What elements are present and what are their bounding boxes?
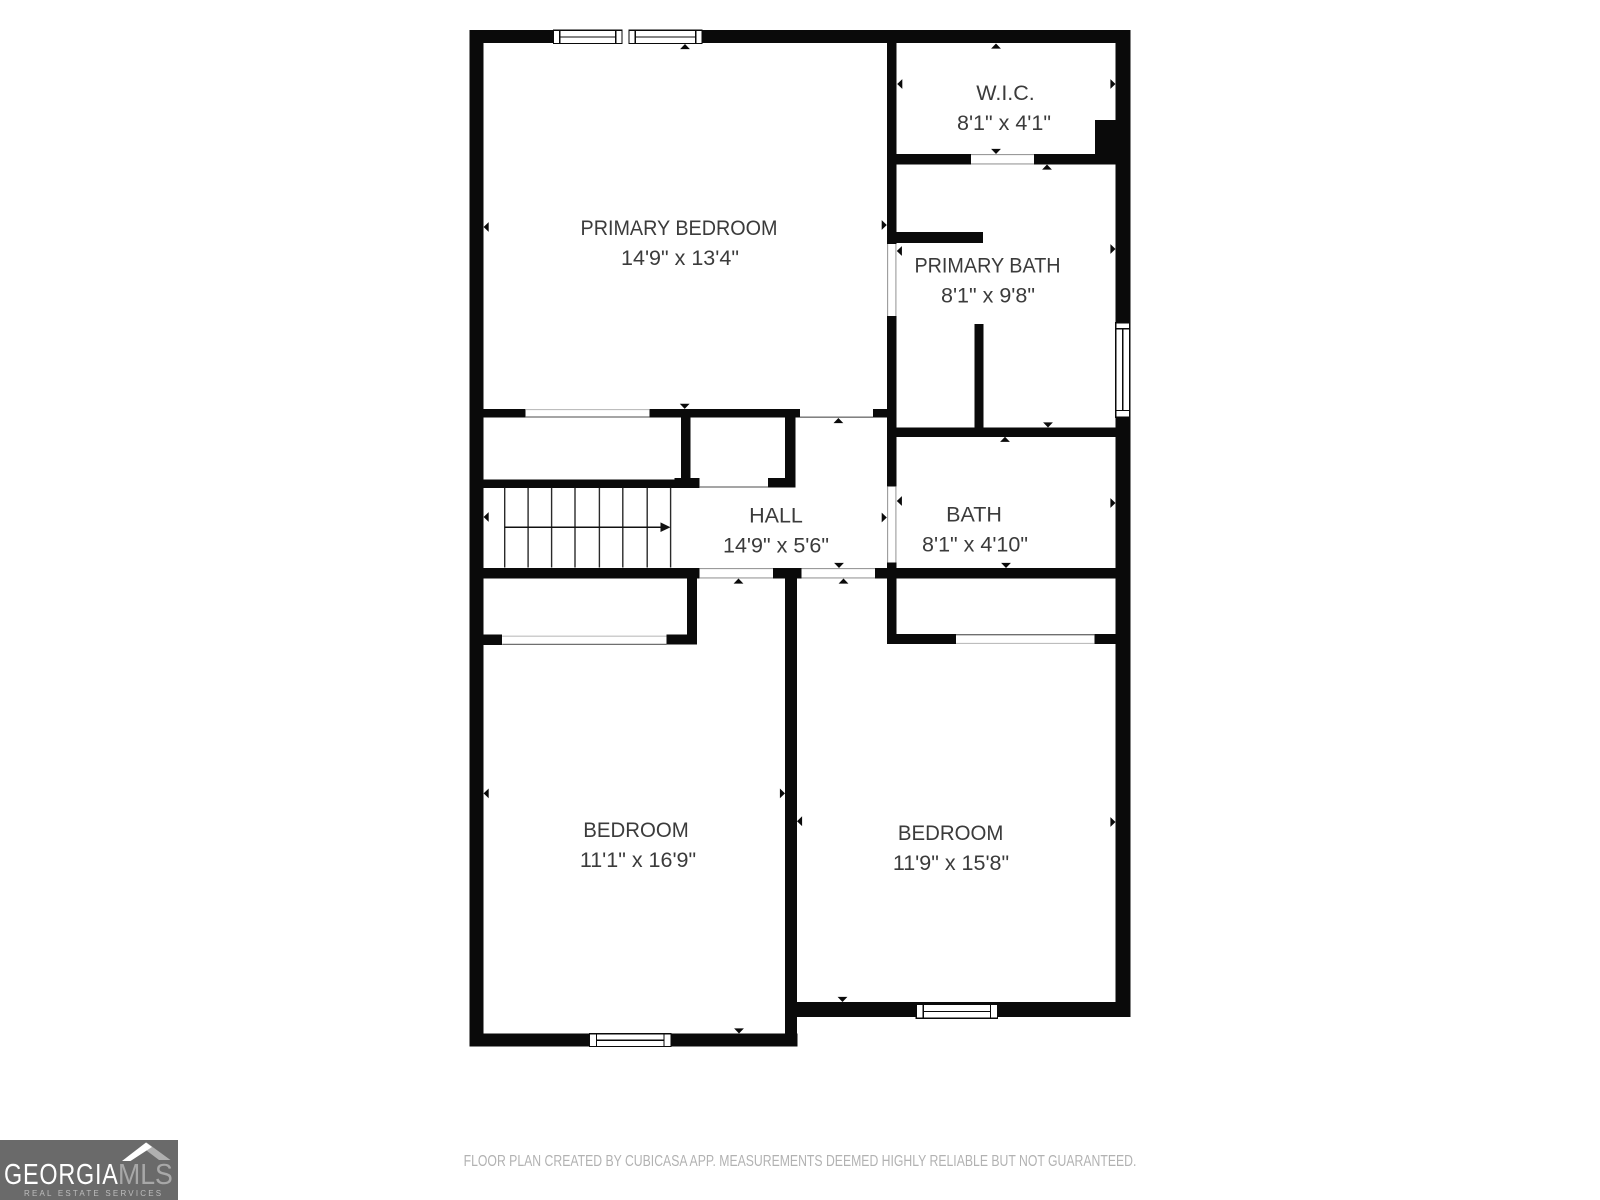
svg-text:HALL: HALL: [749, 504, 803, 528]
svg-text:PRIMARY BATH: PRIMARY BATH: [914, 254, 1060, 278]
svg-text:14'9" x 5'6": 14'9" x 5'6": [723, 534, 829, 558]
svg-text:FLOOR PLAN CREATED BY CUBICASA: FLOOR PLAN CREATED BY CUBICASA APP. MEAS…: [464, 1152, 1137, 1170]
svg-text:MLS: MLS: [118, 1158, 173, 1190]
svg-text:8'1" x 9'8": 8'1" x 9'8": [941, 284, 1035, 308]
svg-text:8'1" x 4'1": 8'1" x 4'1": [957, 111, 1051, 135]
svg-text:GEORGIA: GEORGIA: [4, 1158, 119, 1191]
svg-text:BEDROOM: BEDROOM: [898, 822, 1003, 846]
svg-text:REAL ESTATE SERVICES: REAL ESTATE SERVICES: [24, 1189, 163, 1198]
svg-text:11'9" x 15'8": 11'9" x 15'8": [893, 851, 1009, 875]
svg-text:14'9" x 13'4": 14'9" x 13'4": [621, 246, 739, 270]
svg-text:BEDROOM: BEDROOM: [583, 819, 688, 843]
svg-text:8'1" x 4'10": 8'1" x 4'10": [922, 533, 1028, 557]
svg-text:11'1" x 16'9": 11'1" x 16'9": [580, 848, 696, 872]
svg-text:PRIMARY BEDROOM: PRIMARY BEDROOM: [581, 216, 778, 240]
svg-text:BATH: BATH: [946, 503, 1002, 527]
svg-text:W.I.C.: W.I.C.: [976, 81, 1035, 105]
